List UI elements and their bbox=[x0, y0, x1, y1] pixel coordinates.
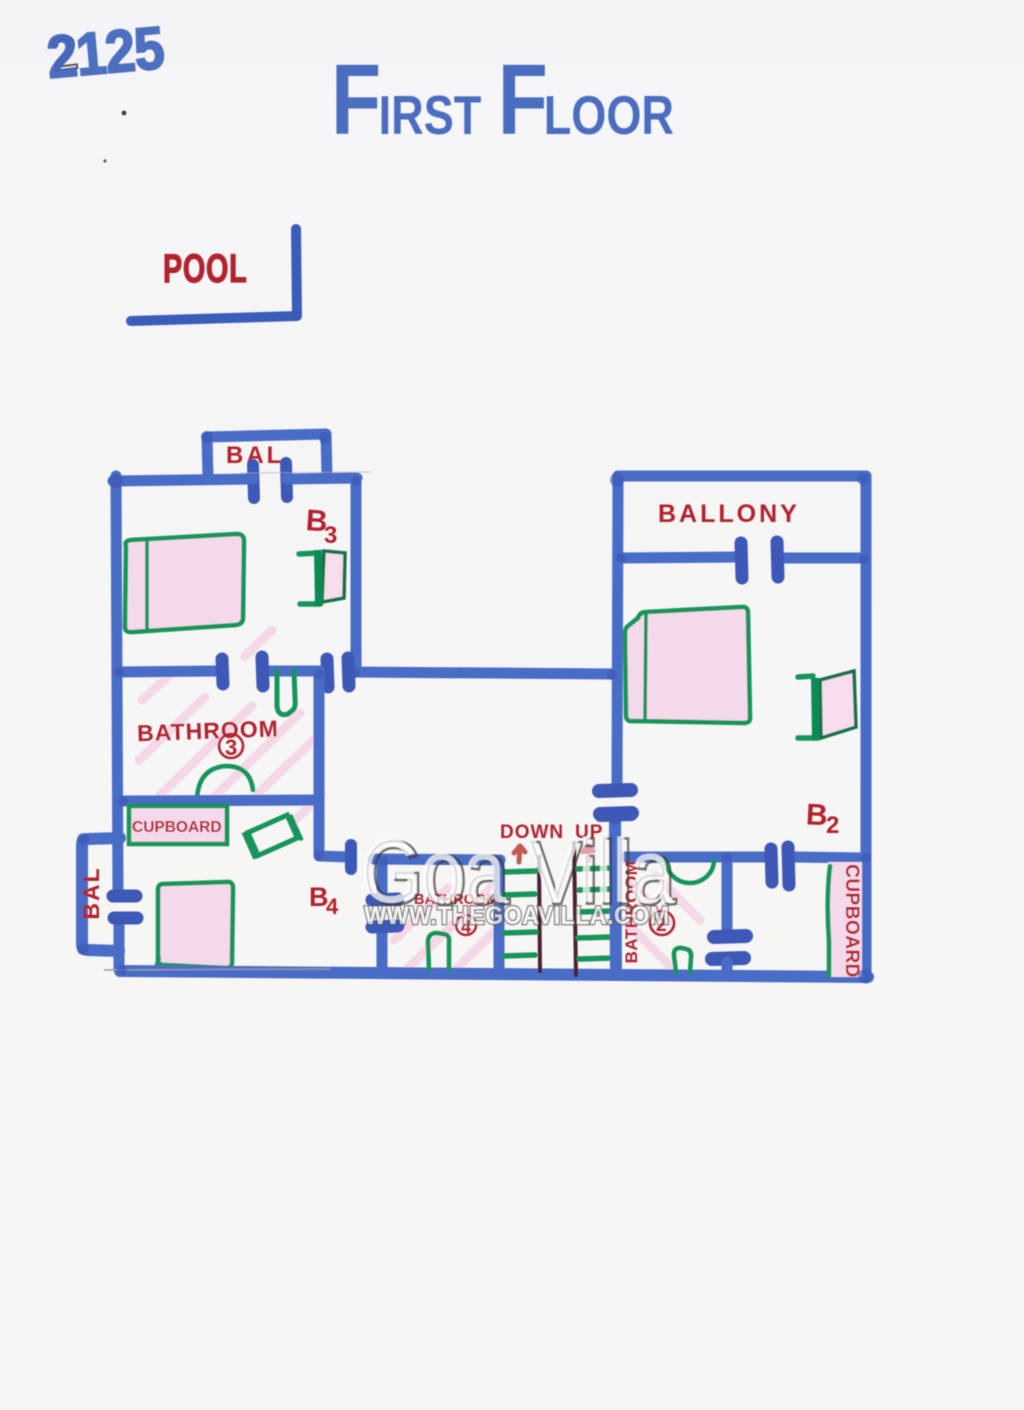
svg-text:4: 4 bbox=[326, 894, 339, 919]
svg-text:B: B bbox=[805, 798, 828, 832]
svg-text:CUPBOARD: CUPBOARD bbox=[841, 864, 862, 978]
svg-text:CUPBOARD: CUPBOARD bbox=[132, 819, 222, 836]
svg-text:BAL: BAL bbox=[78, 866, 104, 919]
svg-text:WWW.THEGOAVILLA.COM: WWW.THEGOAVILLA.COM bbox=[364, 902, 669, 930]
svg-text:BALLONY: BALLONY bbox=[658, 500, 800, 528]
svg-text:BATHROOM: BATHROOM bbox=[137, 715, 280, 746]
svg-text:POOL: POOL bbox=[163, 246, 247, 291]
svg-text:3: 3 bbox=[225, 735, 237, 760]
svg-text:2: 2 bbox=[826, 812, 839, 839]
svg-text:3: 3 bbox=[324, 522, 337, 549]
svg-text:2125: 2125 bbox=[44, 14, 166, 91]
